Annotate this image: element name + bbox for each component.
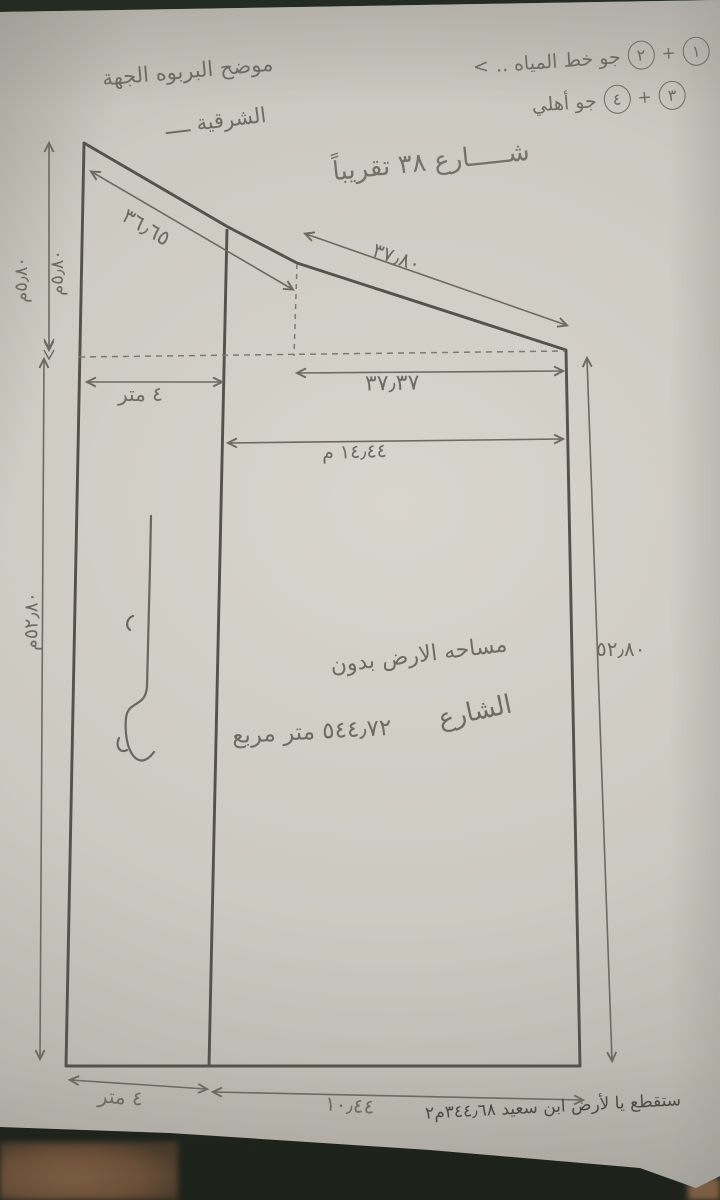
dim-bottom-strip-label: ٤ متر xyxy=(97,1084,143,1109)
angle-mark: < xyxy=(472,55,489,78)
note-ahli-side: جو أهلي xyxy=(531,90,597,116)
dim-right-side-arrow xyxy=(587,359,612,1060)
dim-left-lower-arrow xyxy=(40,360,44,1058)
circle-number-3: ٣ xyxy=(658,80,687,111)
dim-left-upper-label-outer: ٥٫٨٠م xyxy=(12,240,32,320)
dim-left-upper-label-inner: ٥٫٨٠م xyxy=(48,233,68,313)
floor-wood-patch-left xyxy=(0,1142,178,1200)
dim-left-lower-label: ٥٢٫٨٠م xyxy=(22,581,43,661)
circle-number-1: ١ xyxy=(682,36,711,67)
photo-scene: موضح البربوه الجهة الشرقية ــــ ١ + ٢ جو… xyxy=(0,0,720,1200)
plus-sign-1: + xyxy=(661,43,677,64)
plot-outline xyxy=(66,143,580,1066)
dim-3737-label: ٣٧٫٣٧ xyxy=(365,372,420,397)
circle-number-4: ٤ xyxy=(603,84,632,115)
dim-strip-top-label: ٤ متر xyxy=(118,383,163,405)
paper-sheet: موضح البربوه الجهة الشرقية ــــ ١ + ٢ جو… xyxy=(0,0,720,1200)
pencil-drawing-layer: موضح البربوه الجهة الشرقية ــــ ١ + ٢ جو… xyxy=(0,0,720,1200)
dashed-vertical-line xyxy=(294,264,297,356)
dim-right-side-label: ٥٢٫٨٠ xyxy=(596,638,645,660)
dim-1444-arrow xyxy=(229,439,562,443)
dimension-arrows xyxy=(40,144,612,1100)
dim-1444-label: ١٤٫٤٤ م xyxy=(322,441,388,464)
dashed-horizontal-line xyxy=(79,351,565,357)
note-waterline-side: جو خط المياه .. xyxy=(495,46,621,77)
dim-slope-left-arrow xyxy=(92,172,292,289)
dim-bottom-main-label: ١٠٫٤٤ xyxy=(324,1092,375,1117)
plus-sign-2: + xyxy=(637,87,653,108)
circle-number-2: ٢ xyxy=(627,40,656,71)
strip-scribble xyxy=(118,516,154,761)
dim-3737-arrow xyxy=(298,371,562,373)
